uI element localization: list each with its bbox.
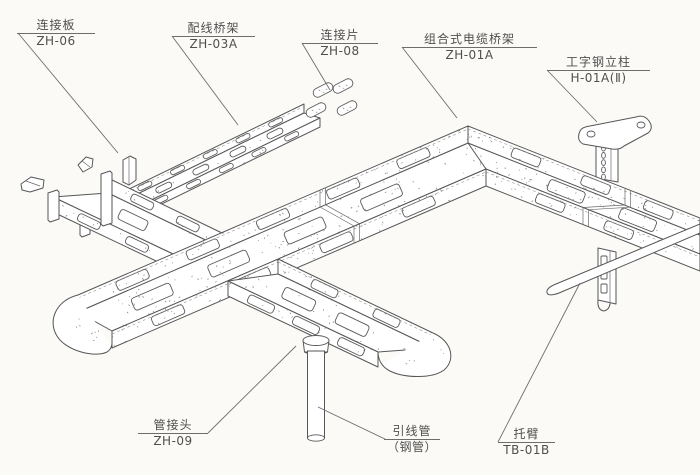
part-label: 管接头 bbox=[138, 418, 208, 432]
part-label: 连接板 bbox=[17, 18, 95, 32]
callout-lead-wire-pipe: 引线管 （钢管） bbox=[384, 424, 440, 455]
part-label: 引线管 bbox=[384, 424, 440, 438]
callout-connection-plate: 连接板 ZH-06 bbox=[17, 18, 95, 49]
part-code: ZH-03A bbox=[172, 37, 255, 52]
diagram-page: 连接板 ZH-06 配线桥架 ZH-03A 连接片 ZH-08 组合式电缆桥架 … bbox=[0, 0, 700, 475]
callout-combined-cable-tray: 组合式电缆桥架 ZH-01A bbox=[402, 32, 537, 63]
part-code: H-01A(Ⅱ) bbox=[547, 71, 650, 86]
connection-strips-zh08 bbox=[305, 77, 359, 119]
callout-pipe-joint: 管接头 ZH-09 bbox=[138, 418, 208, 449]
part-label: 工字钢立柱 bbox=[547, 55, 650, 69]
part-code: ZH-01A bbox=[402, 48, 537, 63]
callout-i-beam-column: 工字钢立柱 H-01A(Ⅱ) bbox=[547, 55, 650, 86]
callout-support-arm: 托臂 TB-01B bbox=[498, 427, 555, 458]
part-code: ZH-09 bbox=[138, 434, 208, 449]
callout-connection-strip: 连接片 ZH-08 bbox=[302, 28, 378, 59]
callout-wiring-tray: 配线桥架 ZH-03A bbox=[172, 21, 255, 52]
part-code: ZH-08 bbox=[302, 44, 378, 59]
part-code: TB-01B bbox=[498, 443, 555, 458]
part-code: ZH-06 bbox=[17, 34, 95, 49]
part-label: 托臂 bbox=[498, 427, 555, 441]
cross-arm-southeast bbox=[228, 259, 451, 377]
part-label: 组合式电缆桥架 bbox=[402, 32, 537, 46]
part-code: （钢管） bbox=[384, 440, 440, 455]
lead-wire-pipe bbox=[303, 336, 329, 442]
part-label: 配线桥架 bbox=[172, 21, 255, 35]
part-label: 连接片 bbox=[302, 28, 378, 42]
